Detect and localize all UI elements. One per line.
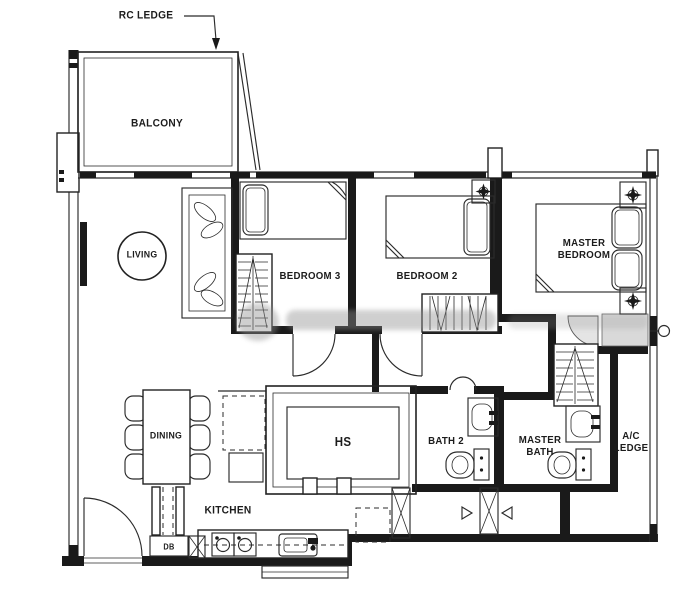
master-bath-sink-icon: [566, 406, 600, 442]
label-ac-ledge: A/C LEDGE: [614, 430, 649, 454]
rc-ledge-edge: [238, 53, 260, 170]
floorplan-drawing: [0, 0, 696, 600]
label-master-bath: MASTER BATH: [519, 434, 561, 458]
kitchen-counter: [198, 530, 348, 558]
bedroom3-door-arc: [293, 334, 335, 376]
label-balcony: BALCONY: [131, 118, 183, 131]
window-walls: [78, 148, 656, 178]
bath2-door-arc: [450, 377, 476, 390]
kitchen-passage: [152, 487, 184, 535]
label-bedroom3: BEDROOM 3: [280, 270, 341, 282]
label-dining: DINING: [150, 432, 182, 443]
bedroom2-door-arc: [380, 334, 422, 376]
kitchen-ledge: [262, 566, 348, 578]
kitchen-cabinet-icon: [229, 453, 263, 482]
wall-duct-hatches: [356, 488, 512, 542]
label-rc-ledge: RC LEDGE: [119, 10, 174, 23]
bedroom3-bed-icon: [240, 182, 346, 239]
wall-niche: [57, 133, 79, 192]
floor-plan: RC LEDGE BALCONY LIVING BEDROOM 3 BEDROO…: [0, 0, 696, 600]
bedroom2-bed-icon: [386, 196, 494, 258]
label-bath2: BATH 2: [428, 435, 464, 447]
fridge-icon: [223, 396, 265, 450]
sofa-icon: [182, 188, 232, 318]
label-master-bedroom: MASTER BEDROOM: [558, 237, 610, 261]
leader-arrow-icon: [184, 16, 220, 50]
tv-console-icon: [80, 222, 87, 286]
label-living: LIVING: [127, 251, 158, 262]
label-db: DB: [163, 542, 174, 551]
bath2-sink-icon: [468, 398, 498, 436]
master-wardrobe-icon: [554, 344, 598, 406]
label-hs: HS: [335, 435, 352, 449]
label-bedroom2: BEDROOM 2: [397, 270, 458, 282]
bath2-toilet-icon: [446, 449, 489, 480]
balcony-walls: [78, 52, 260, 172]
entrance-threshold: [84, 556, 142, 566]
entrance-door-arc: [84, 498, 142, 556]
label-kitchen: KITCHEN: [205, 505, 252, 518]
